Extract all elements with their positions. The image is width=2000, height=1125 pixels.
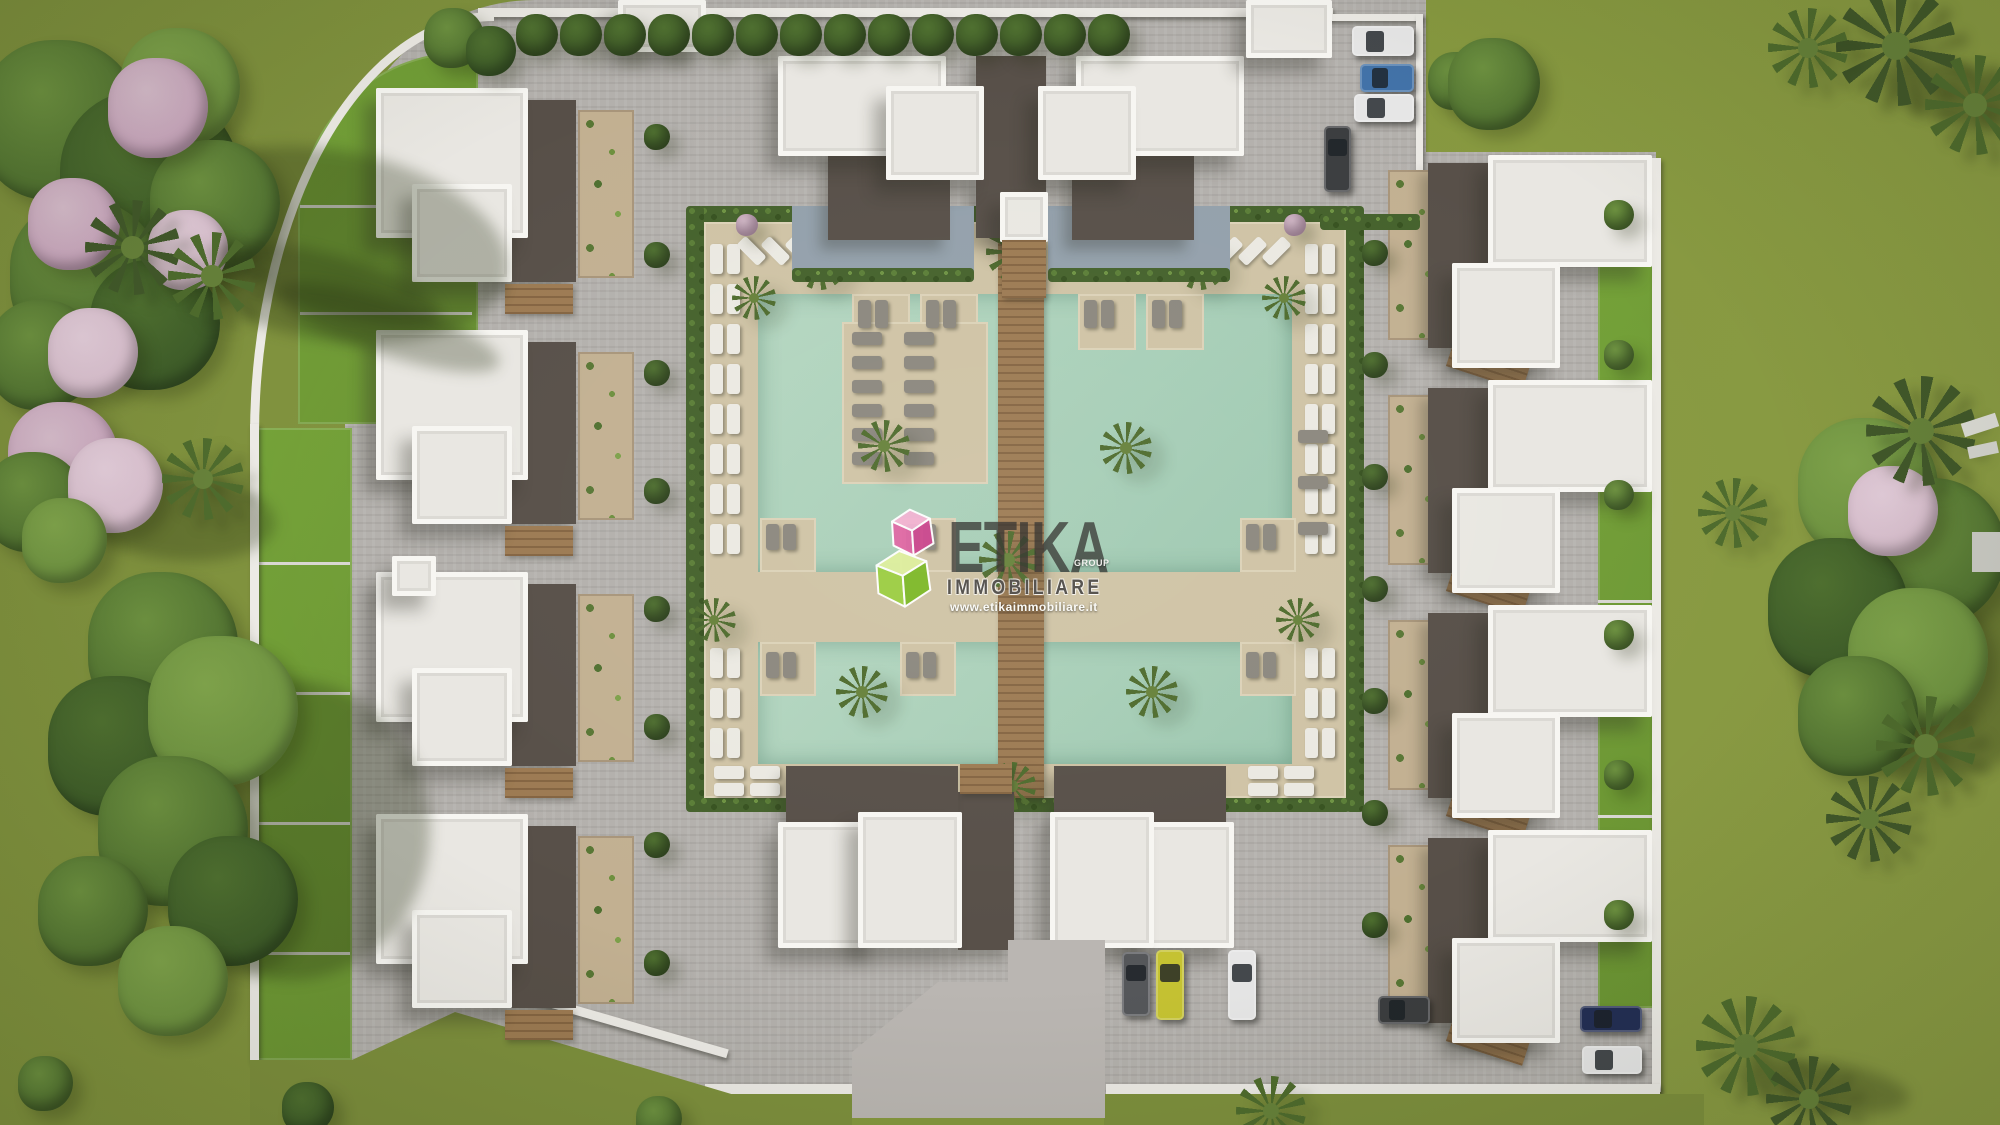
entry-bridge [960, 764, 1012, 794]
palm-tree [1876, 696, 1976, 796]
car-windshield [1366, 31, 1385, 52]
aerial-render-image: ETIKA GROUP IMMOBILIARE www.etikaimmobil… [0, 0, 2000, 1125]
shrub [282, 1082, 334, 1125]
sun-lounger [1322, 648, 1335, 678]
flower-bush [736, 214, 758, 236]
car-windshield [1594, 1010, 1613, 1028]
palm-tree [1866, 376, 1976, 486]
palm-center [1882, 32, 1911, 61]
sun-lounger [1305, 364, 1318, 394]
roof-terrace [578, 110, 634, 278]
roof-terrace [578, 594, 634, 762]
palm-center [1914, 734, 1938, 758]
car-dark [1378, 996, 1430, 1024]
sun-lounger [727, 648, 740, 678]
parking-wall-top [1318, 14, 1422, 21]
sun-lounger [1322, 324, 1335, 354]
palm-center [1963, 93, 1987, 117]
white-roof [1246, 0, 1332, 58]
palm-center [878, 440, 890, 452]
sun-lounger [1248, 783, 1278, 796]
grass-bottom-strip [700, 1094, 852, 1125]
white-roof [858, 812, 962, 948]
grass-bottom-strip [1104, 1094, 1704, 1125]
sun-lounger-gray [852, 332, 882, 345]
sun-lounger [710, 688, 723, 718]
sun-lounger-gray [1263, 524, 1276, 550]
white-roof [1050, 812, 1154, 948]
small-structure [392, 556, 436, 596]
sun-lounger-gray [904, 404, 934, 417]
sun-lounger [710, 524, 723, 554]
sun-lounger [1322, 444, 1335, 474]
palm-center [1734, 1034, 1758, 1058]
courtyard-hedge-left [686, 206, 704, 812]
car-dark [1122, 952, 1150, 1016]
car-windshield [1126, 965, 1146, 982]
sun-lounger-gray [923, 652, 936, 678]
beach-item [1972, 532, 2000, 572]
sun-lounger-gray [783, 524, 796, 550]
sun-lounger-gray [766, 524, 779, 550]
palm-center [1293, 615, 1304, 626]
white-roof [1452, 938, 1560, 1043]
sun-lounger [727, 524, 740, 554]
sun-lounger [710, 364, 723, 394]
car-white [1354, 94, 1414, 122]
white-roof [1452, 713, 1560, 818]
sun-lounger [727, 244, 740, 274]
palm-center [1725, 505, 1742, 522]
entry-bridge [1002, 240, 1046, 298]
sun-lounger [1322, 284, 1335, 314]
car-navy [1580, 1006, 1642, 1032]
sun-lounger [1248, 766, 1278, 779]
sun-lounger-gray [904, 332, 934, 345]
bridge [505, 1010, 573, 1040]
bridge [505, 526, 573, 556]
boundary-wall-right [1652, 158, 1661, 1092]
sun-lounger [1322, 728, 1335, 758]
sun-lounger-gray [1084, 300, 1097, 328]
sun-lounger [727, 364, 740, 394]
car-windshield [1595, 1050, 1613, 1070]
palm-center [749, 293, 760, 304]
palm-tree [1262, 276, 1306, 320]
sun-lounger-gray [906, 652, 919, 678]
palm-center [1279, 293, 1290, 304]
palm-tree [1126, 666, 1178, 718]
white-roof [1038, 86, 1136, 180]
white-roof [412, 426, 512, 524]
car-windshield [1160, 964, 1180, 982]
sun-lounger [1322, 244, 1335, 274]
watermark-brand: ETIKA [948, 512, 1108, 584]
planter-row [1048, 268, 1230, 282]
watermark-group-label: GROUP [1074, 558, 1110, 568]
sun-lounger-gray [1298, 476, 1328, 489]
palm-center [1908, 418, 1934, 444]
palm-tree [732, 276, 776, 320]
car-windshield [1232, 964, 1252, 982]
car-windshield [1372, 68, 1388, 88]
sun-lounger-gray [858, 300, 871, 328]
sun-lounger-gray [852, 356, 882, 369]
palm-center [1120, 442, 1132, 454]
car-windshield [1389, 1000, 1405, 1020]
palm-tree [836, 666, 888, 718]
bridge [505, 284, 573, 314]
watermark: ETIKA GROUP IMMOBILIARE www.etikaimmobil… [858, 492, 1124, 624]
sun-lounger [714, 783, 744, 796]
etika-logo-cubes [866, 496, 952, 621]
palm-center [1263, 1103, 1280, 1120]
palm-center [856, 686, 868, 698]
sun-lounger [727, 444, 740, 474]
palm-center [1798, 38, 1817, 57]
sun-lounger-gray [1263, 652, 1276, 678]
car-white [1582, 1046, 1642, 1074]
palm-center [121, 236, 144, 259]
palm-tree [168, 232, 256, 320]
sun-lounger [1305, 444, 1318, 474]
sun-lounger [750, 766, 780, 779]
sun-lounger-gray [766, 652, 779, 678]
sun-lounger-gray [926, 300, 939, 328]
palm-tree [1826, 776, 1912, 862]
white-roof [1452, 263, 1560, 368]
boundary-wall-bottom [705, 1084, 853, 1094]
white-roof [1488, 380, 1652, 492]
watermark-subtitle: IMMOBILIARE [947, 576, 1103, 600]
white-roof [412, 910, 512, 1008]
sun-lounger-gray [943, 300, 956, 328]
palm-center [1799, 1089, 1820, 1110]
sun-lounger-gray [852, 380, 882, 393]
car-white [1352, 26, 1414, 56]
palm-tree [162, 438, 244, 520]
sun-lounger [710, 244, 723, 274]
sun-lounger [1305, 648, 1318, 678]
palm-center [709, 615, 720, 626]
sun-lounger-gray [852, 404, 882, 417]
sun-lounger-gray [783, 652, 796, 678]
roof-terrace [578, 836, 634, 1004]
sun-lounger [710, 284, 723, 314]
palm-tree [692, 598, 736, 642]
lawn-divider [1598, 815, 1654, 818]
car-blue [1360, 64, 1414, 92]
palm-tree [858, 420, 910, 472]
white-roof [886, 86, 984, 180]
parking-wall-right [1416, 14, 1423, 194]
palm-center [201, 265, 222, 286]
sun-lounger [727, 484, 740, 514]
sun-lounger [1305, 284, 1318, 314]
tree [22, 498, 107, 583]
sun-lounger [710, 728, 723, 758]
sun-lounger [710, 444, 723, 474]
palm-center [193, 469, 213, 489]
sun-lounger [1284, 766, 1314, 779]
sun-lounger [1305, 728, 1318, 758]
sun-lounger [1284, 783, 1314, 796]
sun-lounger-gray [1246, 652, 1259, 678]
white-roof [412, 668, 512, 766]
sun-lounger [1322, 364, 1335, 394]
bridge [505, 768, 573, 798]
courtyard-hedge-right [1346, 206, 1364, 812]
palm-tree [1100, 422, 1152, 474]
sun-lounger [1305, 688, 1318, 718]
car-windshield [1367, 98, 1385, 118]
sun-lounger-gray [1298, 522, 1328, 535]
boundary-wall-bottom [1106, 1084, 1660, 1094]
white-roof [1452, 488, 1560, 593]
sun-lounger [1305, 324, 1318, 354]
car-windshield [1328, 139, 1347, 156]
tree [1448, 38, 1540, 130]
sun-lounger-gray [1246, 524, 1259, 550]
car-yellow [1156, 950, 1184, 1020]
sun-lounger [710, 484, 723, 514]
flower-bush [1284, 214, 1306, 236]
planter-row [792, 268, 974, 282]
tree [118, 926, 228, 1036]
sun-lounger [750, 783, 780, 796]
entry-landing [1000, 192, 1048, 242]
sun-lounger [727, 688, 740, 718]
entry-path [958, 792, 1014, 950]
sun-lounger-gray [875, 300, 888, 328]
sun-lounger [727, 324, 740, 354]
sun-lounger [1305, 244, 1318, 274]
boundary-wall-top [478, 8, 1333, 17]
palm-tree [85, 200, 180, 295]
lawn-divider [1598, 600, 1654, 603]
roof-terrace [578, 352, 634, 520]
shrub [18, 1056, 73, 1111]
sun-lounger-gray [904, 356, 934, 369]
car-white [1228, 950, 1256, 1020]
palm-tree [1698, 478, 1768, 548]
sun-lounger-gray [1169, 300, 1182, 328]
palm-center [1859, 809, 1880, 830]
sun-lounger [1322, 688, 1335, 718]
sun-lounger-gray [1298, 430, 1328, 443]
sun-lounger [710, 404, 723, 434]
palm-tree [1276, 598, 1320, 642]
sun-lounger [714, 766, 744, 779]
sun-lounger [727, 404, 740, 434]
sun-lounger-gray [1152, 300, 1165, 328]
lawn-divider [258, 562, 350, 565]
sun-lounger [710, 648, 723, 678]
sun-lounger-gray [1101, 300, 1114, 328]
watermark-url: www.etikaimmobiliare.it [950, 600, 1098, 614]
sun-lounger [727, 728, 740, 758]
sun-lounger-gray [904, 380, 934, 393]
palm-tree [1768, 8, 1848, 88]
parking-hedge [1320, 214, 1420, 230]
palm-center [1146, 686, 1158, 698]
sun-lounger [710, 324, 723, 354]
car-dark [1324, 126, 1351, 192]
